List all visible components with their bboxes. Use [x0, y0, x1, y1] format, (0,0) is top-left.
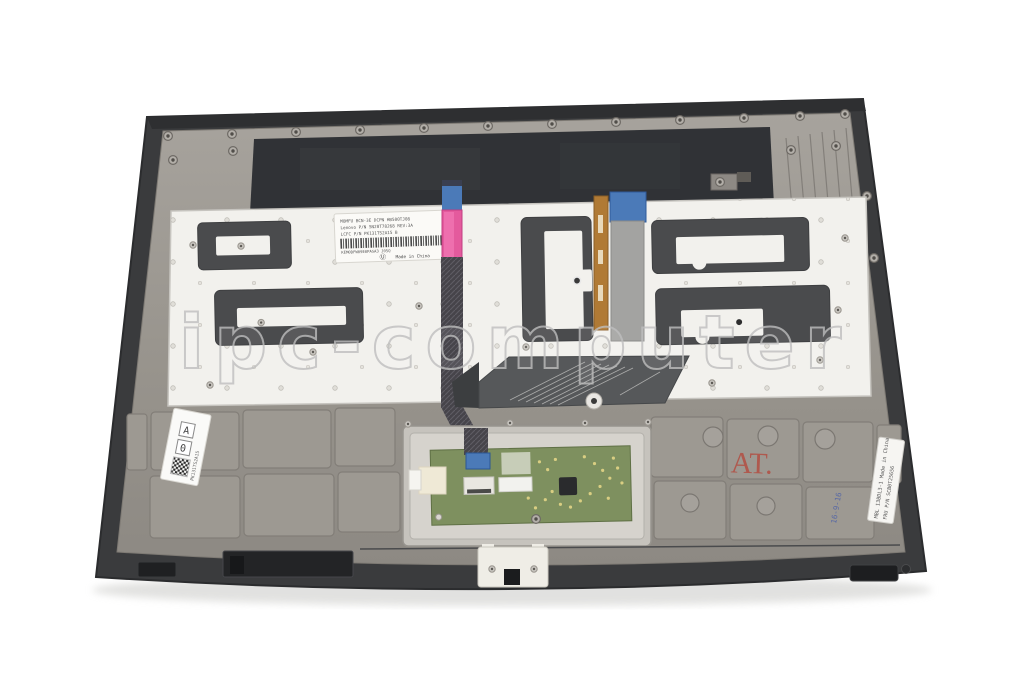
touchpad-pcb — [430, 446, 632, 526]
watermark: ipc-computer — [179, 300, 851, 386]
photo-canvas: MOMFU BCN-3E DCPN HB500TJ08 Lenovo P/N S… — [0, 0, 1024, 680]
backlight-flex-marks — [598, 215, 603, 301]
keyboard-info-label: MOMFU BCN-3E DCPN HB500TJ08 Lenovo P/N S… — [334, 210, 460, 263]
red-stamp: AT. — [730, 446, 773, 480]
ul-mark-icon: Ⓤ — [379, 253, 386, 261]
product-photo: MOMFU BCN-3E DCPN HB500TJ08 Lenovo P/N S… — [0, 0, 1024, 680]
adhesive-foil-1 — [198, 221, 292, 270]
touchpad-connector — [466, 453, 490, 469]
backing-detail — [560, 143, 680, 189]
touchpad-label — [499, 477, 532, 492]
front-bracket — [478, 544, 548, 587]
qr-code — [170, 457, 190, 477]
label-origin: Made in China — [395, 253, 430, 260]
touchpad-ic — [559, 477, 577, 495]
adhesive-foil-4 — [651, 217, 809, 273]
touchpad-assembly — [403, 419, 651, 546]
